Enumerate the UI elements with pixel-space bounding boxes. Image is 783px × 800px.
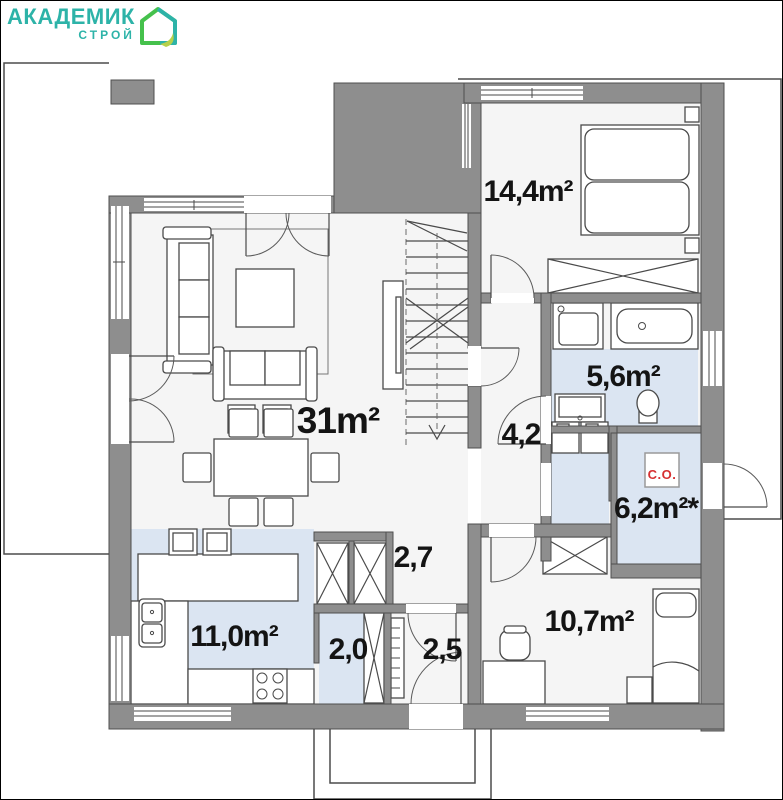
- logo-brand: АКАДЕМИК: [7, 5, 135, 28]
- desk-chair: [500, 626, 530, 660]
- room-label-kitchen: 11,0m²: [190, 620, 278, 653]
- porch-inner-outline: [330, 729, 475, 783]
- stove: [253, 669, 287, 703]
- wardrobe: [317, 543, 348, 604]
- nightstand: [685, 238, 699, 253]
- boiler-room-door: [703, 463, 767, 509]
- logo: АКАДЕМИК СТРОЙ: [7, 5, 179, 47]
- nightstand: [685, 107, 699, 122]
- heating-unit-label: С.О.: [648, 467, 677, 482]
- washing-machine: [553, 303, 603, 349]
- window: [462, 104, 471, 168]
- logo-house-icon: [139, 5, 179, 47]
- single-bed: [653, 589, 699, 703]
- room-label-corridor: 2,7: [394, 541, 433, 574]
- wardrobe: [543, 537, 607, 574]
- logo-text: АКАДЕМИК СТРОЙ: [7, 5, 135, 42]
- chair: [311, 453, 339, 482]
- radiator: [391, 618, 404, 698]
- terrace-outline: [4, 63, 109, 554]
- toilet: [637, 390, 659, 423]
- desk: [483, 661, 545, 704]
- floor-plan-drawing: С.О.: [1, 1, 783, 800]
- porch-outer-outline: [314, 729, 491, 799]
- room-label-living-room: 31m²: [297, 400, 380, 441]
- bathtub: [611, 303, 698, 349]
- room-label-bedroom-main: 14,4m²: [483, 175, 573, 208]
- tv: [396, 297, 401, 373]
- bathroom-sink: [555, 394, 605, 422]
- chimney: [111, 80, 154, 104]
- logo-subtitle: СТРОЙ: [78, 28, 135, 42]
- room-label-entry: 2,5: [423, 633, 462, 666]
- kitchen-sink: [139, 599, 165, 647]
- floor-plan-page: АКАДЕМИК СТРОЙ: [0, 0, 783, 800]
- dining-table: [214, 439, 308, 496]
- chair: [229, 409, 258, 437]
- heating-unit: С.О.: [645, 453, 679, 487]
- kitchen-counter: [138, 554, 298, 601]
- window: [111, 206, 129, 319]
- loveseat: [213, 347, 317, 401]
- laundry-floor: [551, 453, 609, 524]
- window: [526, 707, 609, 721]
- window: [703, 331, 722, 386]
- room-label-hall: 4,2: [502, 418, 541, 451]
- chair: [183, 453, 211, 482]
- room-label-bedroom-second: 10,7m²: [544, 605, 634, 638]
- kitchen-counter-bottom: [188, 669, 314, 704]
- nightstand: [627, 677, 652, 703]
- chair: [229, 498, 258, 526]
- laundry-door: [541, 463, 551, 516]
- coffee-table: [236, 269, 294, 327]
- window: [144, 198, 244, 211]
- room-label-pantry: 2,0: [329, 633, 368, 666]
- bar-stool: [169, 529, 197, 555]
- chair: [264, 498, 293, 526]
- bar-stool: [203, 529, 231, 555]
- window: [111, 636, 129, 701]
- wardrobe: [548, 259, 698, 293]
- room-label-bathroom: 5,6m²: [586, 360, 660, 393]
- window: [481, 86, 583, 100]
- wardrobe: [354, 543, 386, 604]
- chair: [264, 409, 293, 437]
- sofa: [163, 227, 213, 373]
- room-label-boiler-room: 6,2m²*: [614, 492, 699, 525]
- window: [134, 707, 231, 721]
